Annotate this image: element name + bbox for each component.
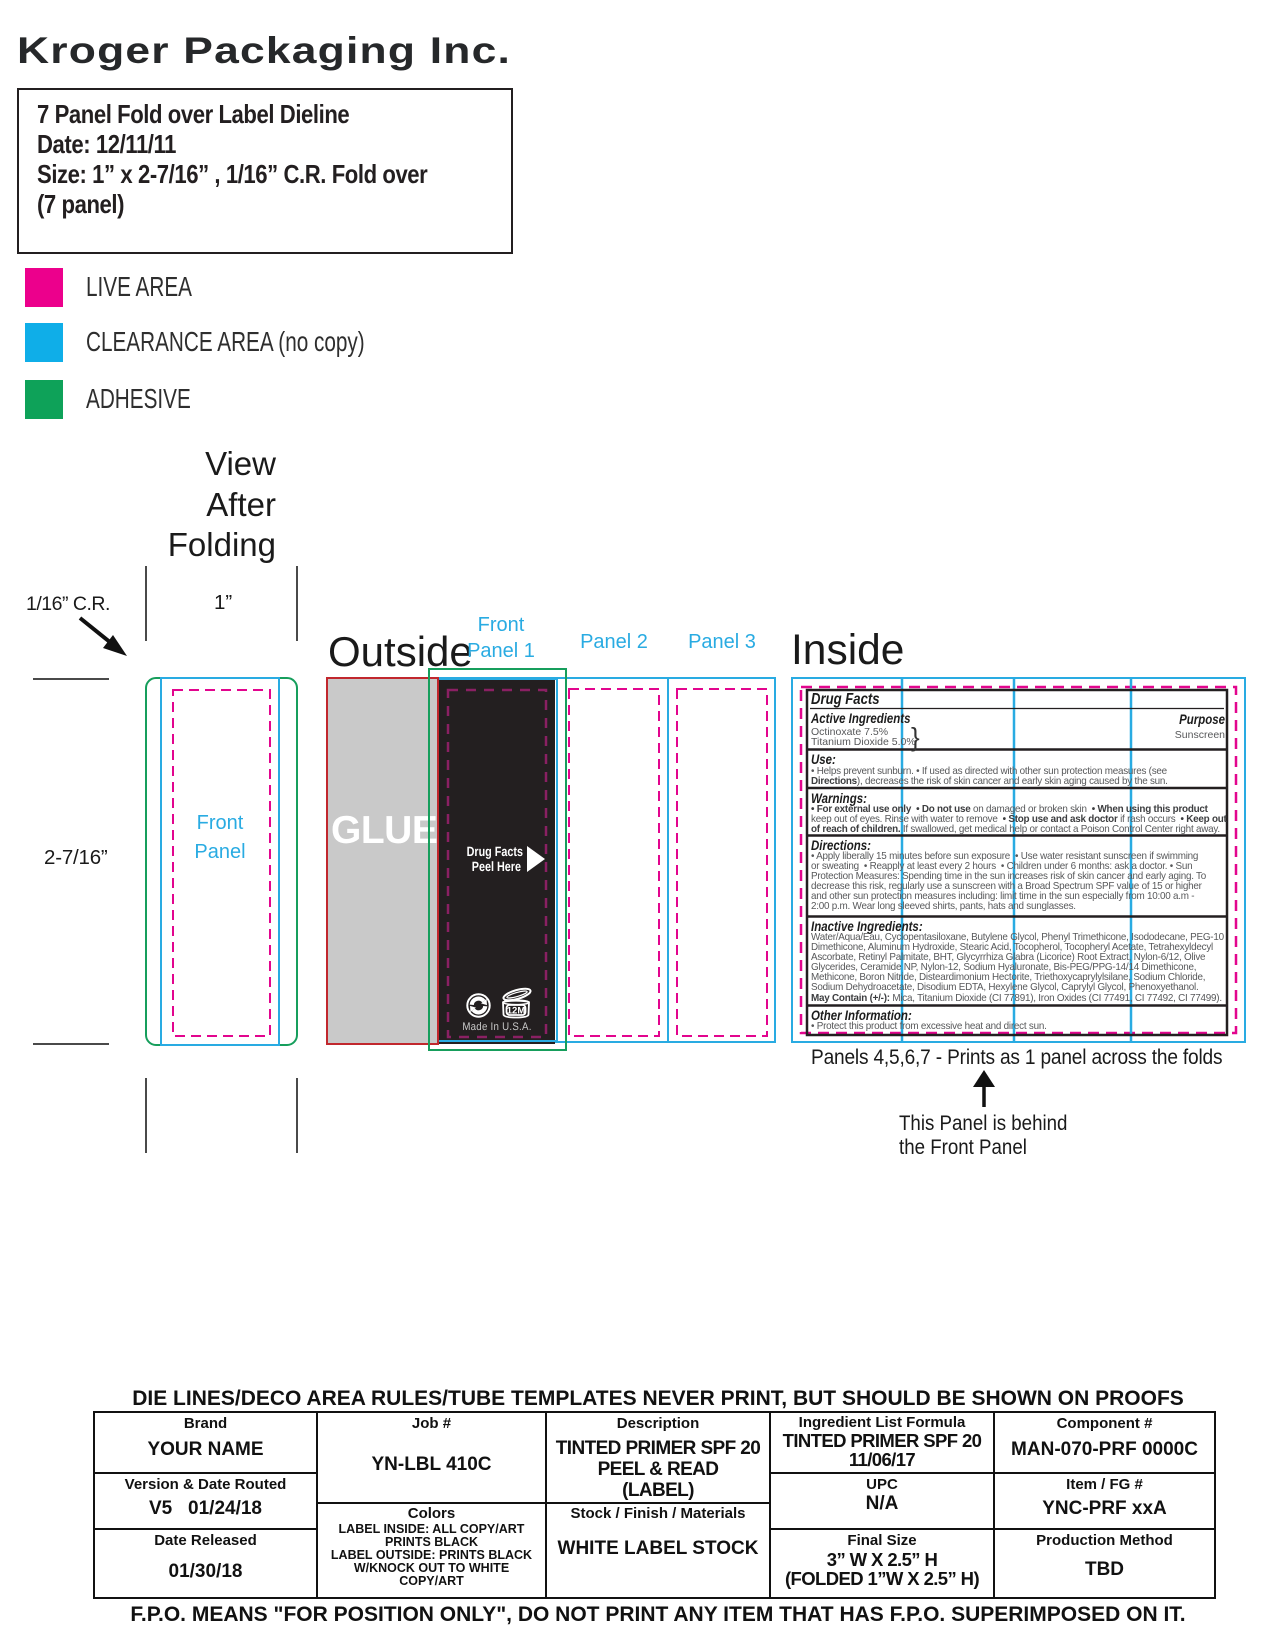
svg-text:Drug Facts: Drug Facts: [467, 844, 523, 859]
svg-text:GLUE: GLUE: [331, 809, 437, 852]
svg-text:Made In U.S.A.: Made In U.S.A.: [462, 1021, 531, 1033]
svg-text:Peel Here: Peel Here: [472, 859, 522, 874]
svg-text:12M: 12M: [507, 1005, 526, 1016]
